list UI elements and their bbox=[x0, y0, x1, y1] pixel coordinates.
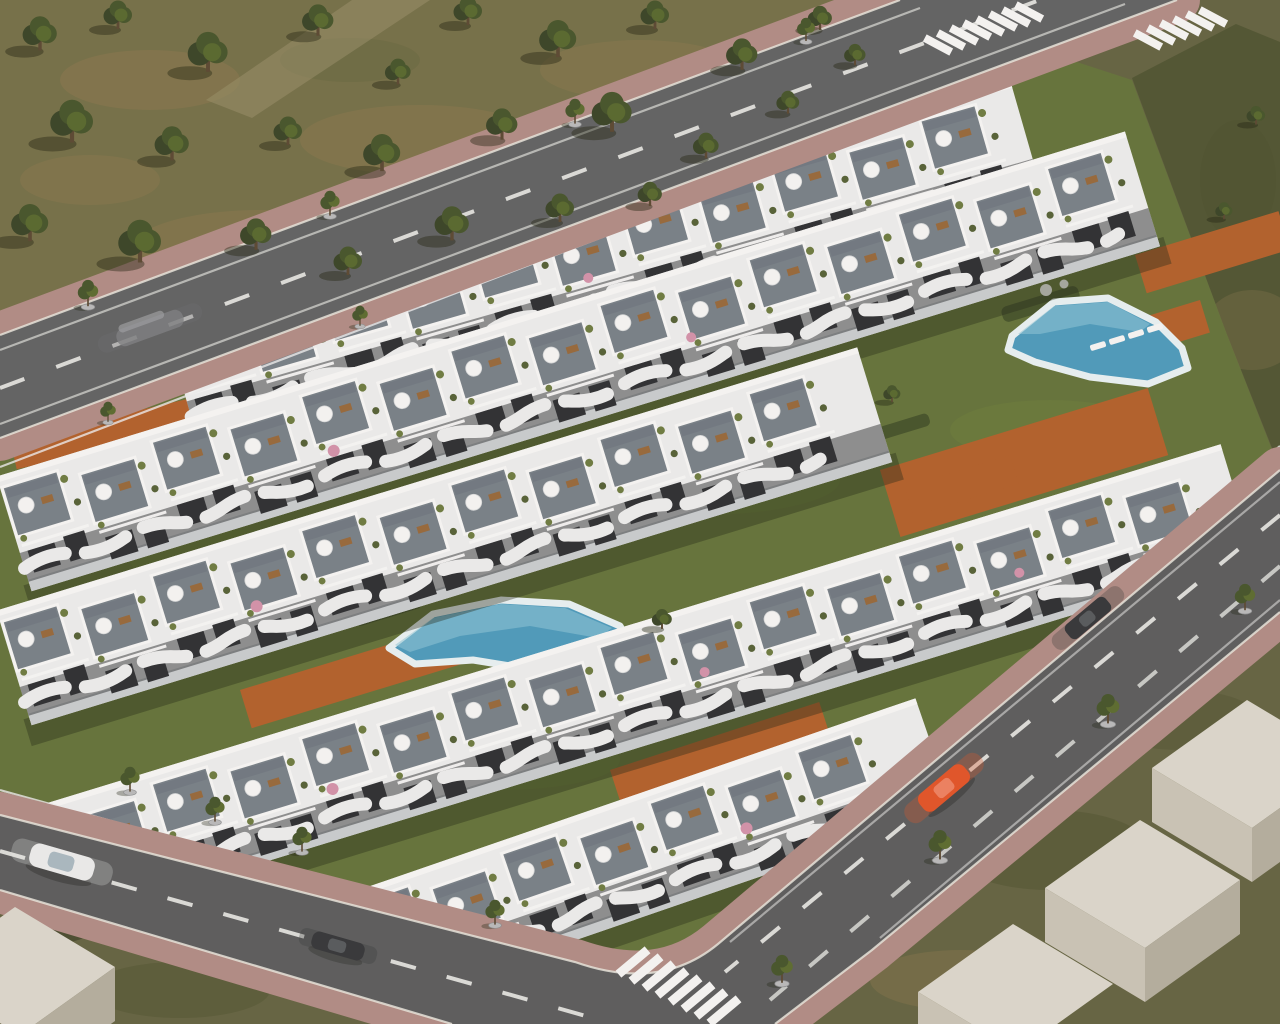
aerial-render bbox=[0, 0, 1280, 1024]
warm-light-overlay bbox=[0, 0, 1280, 1024]
aerial-render-viewport bbox=[0, 0, 1280, 1024]
